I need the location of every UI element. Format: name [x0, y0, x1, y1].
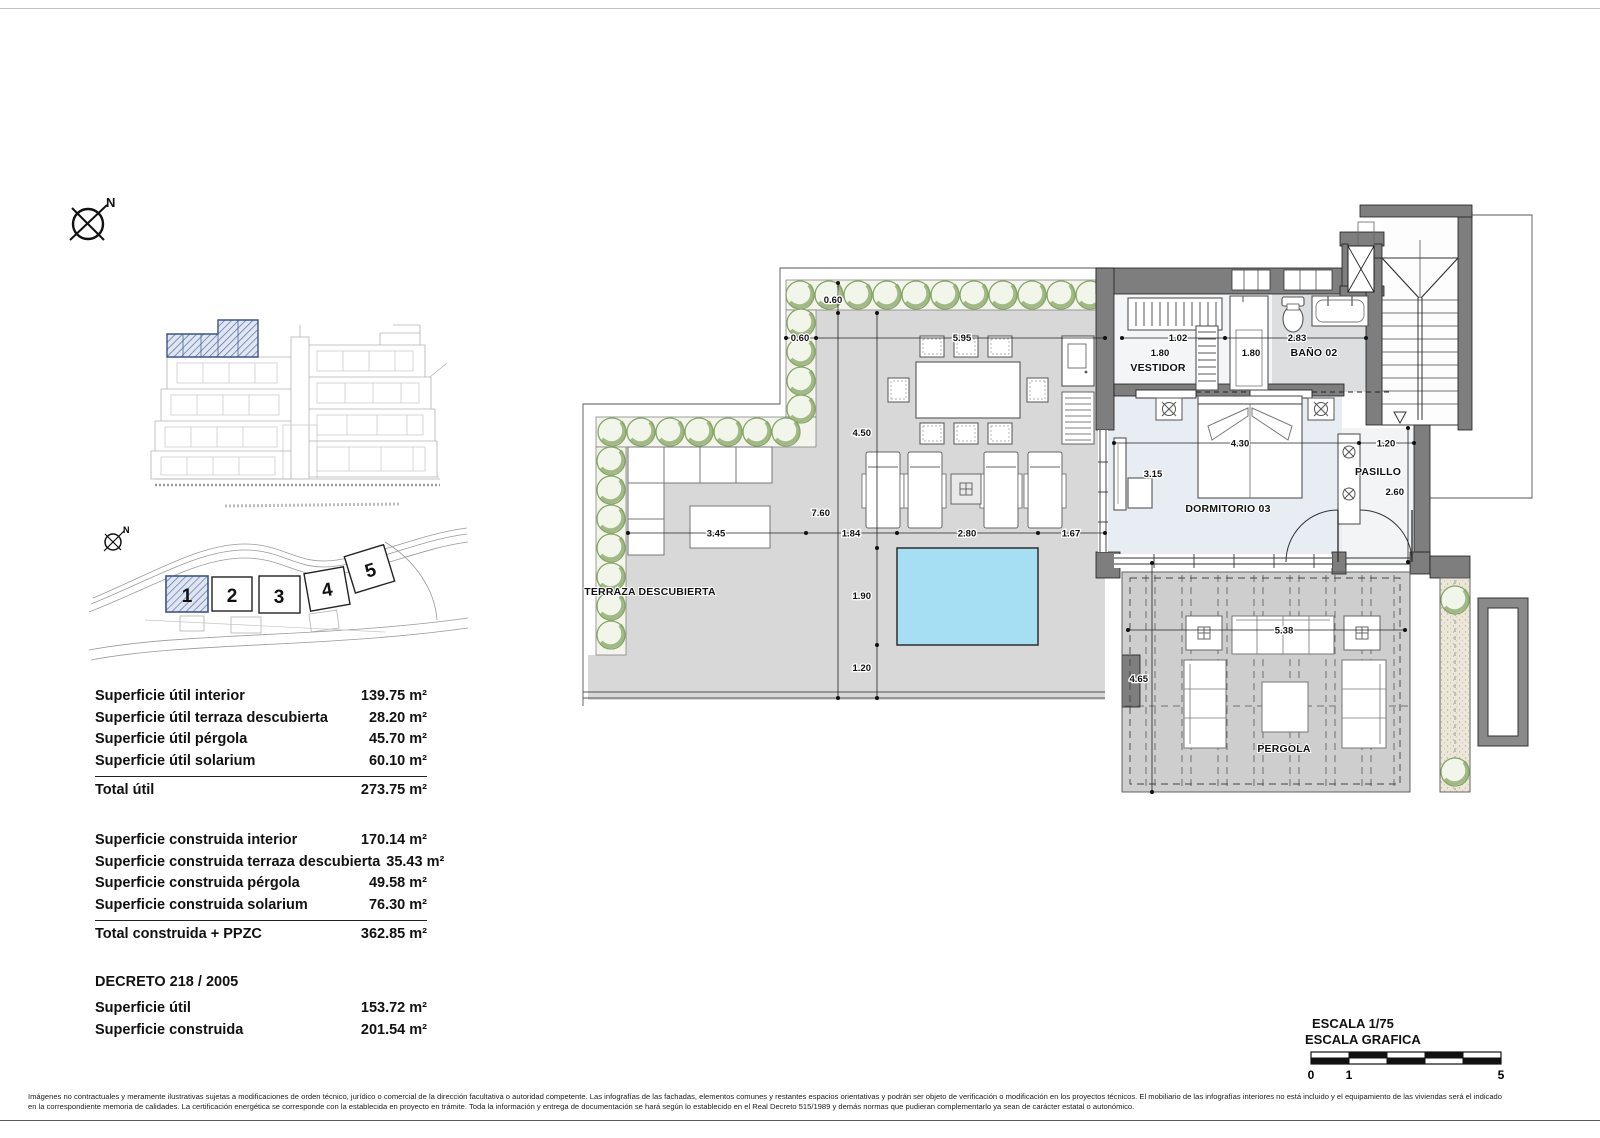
plunge-pool	[897, 548, 1038, 645]
scale-title: ESCALA 1/75	[1305, 1016, 1515, 1032]
row-label: Superficie construida pérgola	[95, 873, 300, 895]
site-north-arrow-icon: N	[104, 525, 130, 551]
row-value: 28.20 m²	[363, 708, 427, 730]
table-row: Superficie construida interior 170.14 m²	[95, 830, 427, 852]
table-row: Superficie útil solarium 60.10 m²	[95, 751, 427, 773]
row-value: 76.30 m²	[363, 895, 427, 917]
total-value: 273.75 m²	[355, 780, 427, 802]
bedroom-shelf	[1114, 438, 1126, 510]
row-label: Superficie construida interior	[95, 830, 297, 852]
row-label: Superficie útil solarium	[95, 751, 255, 773]
site-block-1: 1	[166, 576, 208, 612]
site-block-3-number: 3	[274, 587, 285, 608]
scale-bar-segments	[1311, 1052, 1501, 1064]
row-value: 45.70 m²	[363, 729, 427, 751]
dim-label: 4.65	[1130, 674, 1149, 685]
table-total-row: Total construida + PPZC 362.85 m²	[95, 924, 427, 946]
table-divider	[95, 920, 427, 921]
bedroom-bench	[1128, 478, 1152, 508]
side-planters	[1440, 578, 1528, 792]
table-total-row: Total útil 273.75 m²	[95, 780, 427, 802]
dim-label: 1.80	[1151, 348, 1170, 359]
total-label: Total útil	[95, 780, 154, 802]
scale-tick-0: 0	[1308, 1068, 1315, 1082]
decreto-title: DECRETO 218 / 2005	[95, 970, 427, 994]
dim-label: 5.95	[953, 333, 972, 344]
nightstand-left	[1156, 398, 1182, 420]
table-row: Superficie construida terraza descubiert…	[95, 852, 427, 874]
pergola-coffee-table	[1262, 682, 1308, 732]
decreto-table: DECRETO 218 / 2005 Superficie útil 153.7…	[95, 970, 427, 1041]
row-label: Superficie construida terraza descubiert…	[95, 852, 380, 874]
site-block-3: 3	[259, 576, 300, 613]
dim-label: 2.80	[958, 529, 977, 540]
disclaimer-line-1: Imágenes no contractuales y meramente il…	[28, 1092, 1576, 1102]
disclaimer-line-2: en la correspondiente memoria de calidad…	[28, 1102, 1576, 1112]
dim-label: 1.80	[1242, 348, 1261, 359]
scale-block: ESCALA 1/75 ESCALA GRAFICA 0 1 5	[1305, 1016, 1515, 1086]
graphic-scale-bar: 0 1 5	[1305, 1050, 1511, 1082]
row-label: Superficie útil	[95, 998, 191, 1020]
north-label: N	[106, 195, 115, 210]
scale-subtitle: ESCALA GRAFICA	[1305, 1032, 1515, 1048]
dim-label: 2.83	[1288, 333, 1307, 344]
useful-areas-table: Superficie útil interior 139.75 m² Super…	[95, 686, 427, 802]
row-value: 153.72 m²	[355, 998, 427, 1020]
row-value: 35.43 m²	[380, 852, 444, 874]
row-label: Superficie útil terraza descubierta	[95, 708, 328, 730]
north-arrow-icon: N	[60, 190, 132, 252]
total-label: Total construida + PPZC	[95, 924, 262, 946]
dim-label: 1.90	[853, 591, 872, 602]
sheet-top-border	[0, 8, 1600, 9]
dim-label: 1.02	[1169, 333, 1188, 344]
room-label-pasillo: PASILLO	[1355, 466, 1401, 478]
site-plan: N 1 2 3 4 5	[85, 500, 470, 672]
built-areas-table: Superficie construida interior 170.14 m²…	[95, 830, 427, 946]
dim-label: 4.50	[853, 428, 872, 439]
row-label: Superficie construida solarium	[95, 895, 308, 917]
room-label-terraza: TERRAZA DESCUBIERTA	[584, 586, 716, 598]
nightstand-right	[1308, 398, 1334, 420]
table-row: Superficie construida pérgola 49.58 m²	[95, 873, 427, 895]
floor-plan-drawing: 0.60 7.60 4.50 1.90 1.20 0.60 5.95 3.45 …	[555, 190, 1555, 812]
row-value: 60.10 m²	[363, 751, 427, 773]
room-label-bano: BAÑO 02	[1291, 346, 1338, 359]
row-value: 49.58 m²	[363, 873, 427, 895]
dim-label: 4.30	[1231, 439, 1250, 450]
dim-label: 1.84	[842, 529, 861, 540]
dining-table	[916, 362, 1020, 418]
scale-tick-5: 5	[1498, 1068, 1505, 1082]
floorplan-sheet: N	[0, 0, 1600, 1138]
row-value: 170.14 m²	[355, 830, 427, 852]
dim-label: 3.15	[1144, 469, 1163, 480]
dim-label: 2.60	[1386, 487, 1405, 498]
row-label: Superficie construida	[95, 1020, 243, 1042]
site-north-label: N	[123, 525, 130, 535]
dim-label: 0.60	[791, 333, 810, 344]
room-label-dormitorio: DORMITORIO 03	[1185, 503, 1270, 515]
total-value: 362.85 m²	[355, 924, 427, 946]
lounger-side-table	[951, 474, 981, 504]
dim-label: 1.20	[853, 663, 872, 674]
room-label-pergola: PERGOLA	[1257, 743, 1311, 755]
table-row: Superficie útil terraza descubierta 28.2…	[95, 708, 427, 730]
scale-tick-1: 1	[1346, 1068, 1353, 1082]
site-block-2-number: 2	[227, 586, 238, 607]
table-row: Superficie útil pérgola 45.70 m²	[95, 729, 427, 751]
hallway-wardrobe	[1338, 434, 1360, 524]
table-row: Superficie útil 153.72 m²	[95, 998, 427, 1020]
dim-label: 1.20	[1377, 439, 1396, 450]
row-value: 201.54 m²	[355, 1020, 427, 1042]
elevator	[1348, 246, 1374, 292]
dim-label: 5.38	[1275, 626, 1294, 637]
raised-planter-box	[1478, 598, 1528, 746]
table-row: Superficie construida solarium 76.30 m²	[95, 895, 427, 917]
room-label-vestidor: VESTIDOR	[1130, 362, 1185, 374]
dim-label: 0.60	[824, 295, 843, 306]
highlighted-unit-elevation	[167, 320, 258, 357]
table-row: Superficie útil interior 139.75 m²	[95, 686, 427, 708]
row-label: Superficie útil interior	[95, 686, 245, 708]
headboard	[1198, 396, 1302, 404]
site-block-5: 5	[344, 545, 394, 593]
bathtub-icon	[1312, 296, 1368, 326]
row-label: Superficie útil pérgola	[95, 729, 247, 751]
pergola-sofa-right	[1342, 660, 1386, 748]
building-elevation-sketch	[125, 285, 470, 497]
coffee-table	[690, 506, 770, 548]
table-divider	[95, 776, 427, 777]
dim-label: 1.67	[1062, 529, 1081, 540]
row-value: 139.75 m²	[355, 686, 427, 708]
site-block-1-number: 1	[182, 586, 193, 607]
site-block-2: 2	[212, 577, 252, 611]
dim-label: 3.45	[707, 529, 726, 540]
sheet-bottom-border	[0, 1120, 1600, 1121]
table-row: Superficie construida 201.54 m²	[95, 1020, 427, 1042]
site-block-4: 4	[304, 567, 350, 611]
dim-label: 7.60	[812, 508, 831, 519]
